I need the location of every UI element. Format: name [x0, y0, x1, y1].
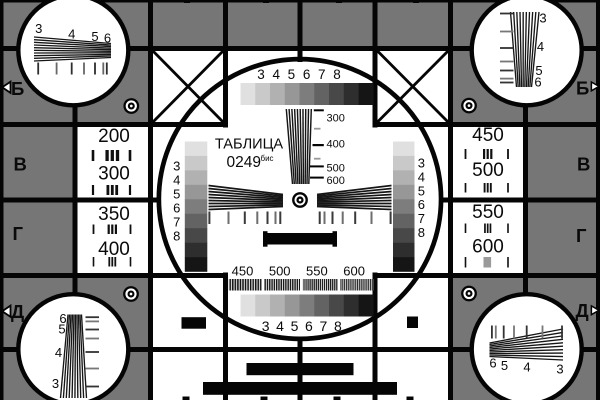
- svg-text:4: 4: [173, 173, 180, 188]
- svg-text:400: 400: [98, 239, 130, 260]
- svg-text:В: В: [14, 154, 27, 175]
- svg-text:В: В: [577, 154, 590, 175]
- svg-text:8: 8: [173, 229, 180, 244]
- svg-text:550: 550: [306, 264, 328, 279]
- svg-text:0249: 0249: [227, 154, 261, 171]
- svg-text:3: 3: [173, 159, 180, 174]
- svg-text:ТАБЛИЦА: ТАБЛИЦА: [215, 137, 284, 153]
- svg-text:450: 450: [472, 125, 504, 146]
- svg-text:5: 5: [501, 358, 508, 373]
- svg-text:5: 5: [58, 321, 65, 336]
- svg-text:300: 300: [98, 164, 130, 185]
- svg-text:300: 300: [327, 112, 345, 124]
- svg-text:3: 3: [52, 376, 59, 391]
- svg-text:5: 5: [288, 67, 296, 82]
- svg-text:3: 3: [35, 21, 42, 36]
- svg-text:5: 5: [173, 187, 180, 202]
- svg-text:4: 4: [55, 345, 62, 360]
- svg-text:6: 6: [104, 31, 111, 46]
- svg-text:200: 200: [98, 126, 130, 147]
- svg-text:4: 4: [418, 169, 425, 184]
- svg-text:3: 3: [257, 67, 265, 82]
- svg-text:Б: Б: [576, 78, 589, 99]
- svg-text:400: 400: [327, 139, 345, 151]
- svg-text:5: 5: [418, 183, 425, 198]
- svg-text:4: 4: [276, 318, 284, 334]
- svg-text:600: 600: [327, 175, 345, 187]
- svg-text:3: 3: [539, 11, 546, 26]
- svg-text:3: 3: [556, 362, 563, 377]
- svg-text:Г: Г: [13, 223, 24, 244]
- svg-text:бис: бис: [261, 154, 274, 163]
- svg-text:3: 3: [262, 318, 270, 334]
- svg-text:4: 4: [272, 67, 280, 82]
- svg-text:450: 450: [232, 264, 254, 279]
- svg-text:500: 500: [472, 160, 504, 181]
- svg-text:550: 550: [472, 202, 504, 223]
- svg-text:4: 4: [537, 39, 544, 54]
- svg-text:500: 500: [327, 162, 345, 174]
- svg-text:Д: Д: [576, 300, 589, 321]
- svg-text:6: 6: [173, 201, 180, 216]
- svg-text:6: 6: [534, 75, 541, 90]
- svg-text:6: 6: [303, 67, 311, 82]
- svg-text:6: 6: [489, 356, 496, 371]
- svg-text:600: 600: [472, 237, 504, 258]
- svg-text:8: 8: [333, 67, 341, 82]
- svg-text:5: 5: [91, 29, 98, 44]
- svg-text:7: 7: [318, 67, 326, 82]
- svg-text:7: 7: [173, 215, 180, 230]
- svg-text:Д: Д: [11, 301, 24, 322]
- svg-text:3: 3: [418, 156, 425, 171]
- svg-text:5: 5: [291, 318, 299, 334]
- svg-text:6: 6: [305, 318, 313, 334]
- svg-text:350: 350: [98, 204, 130, 225]
- svg-text:4: 4: [68, 27, 75, 42]
- svg-text:4: 4: [523, 360, 530, 375]
- svg-text:Б: Б: [11, 78, 24, 99]
- svg-text:Г: Г: [576, 225, 587, 246]
- svg-text:7: 7: [320, 318, 328, 334]
- svg-text:8: 8: [418, 225, 425, 240]
- svg-text:500: 500: [269, 264, 291, 279]
- svg-text:6: 6: [418, 197, 425, 212]
- svg-text:8: 8: [334, 318, 342, 334]
- svg-text:600: 600: [343, 264, 365, 279]
- svg-text:7: 7: [418, 211, 425, 226]
